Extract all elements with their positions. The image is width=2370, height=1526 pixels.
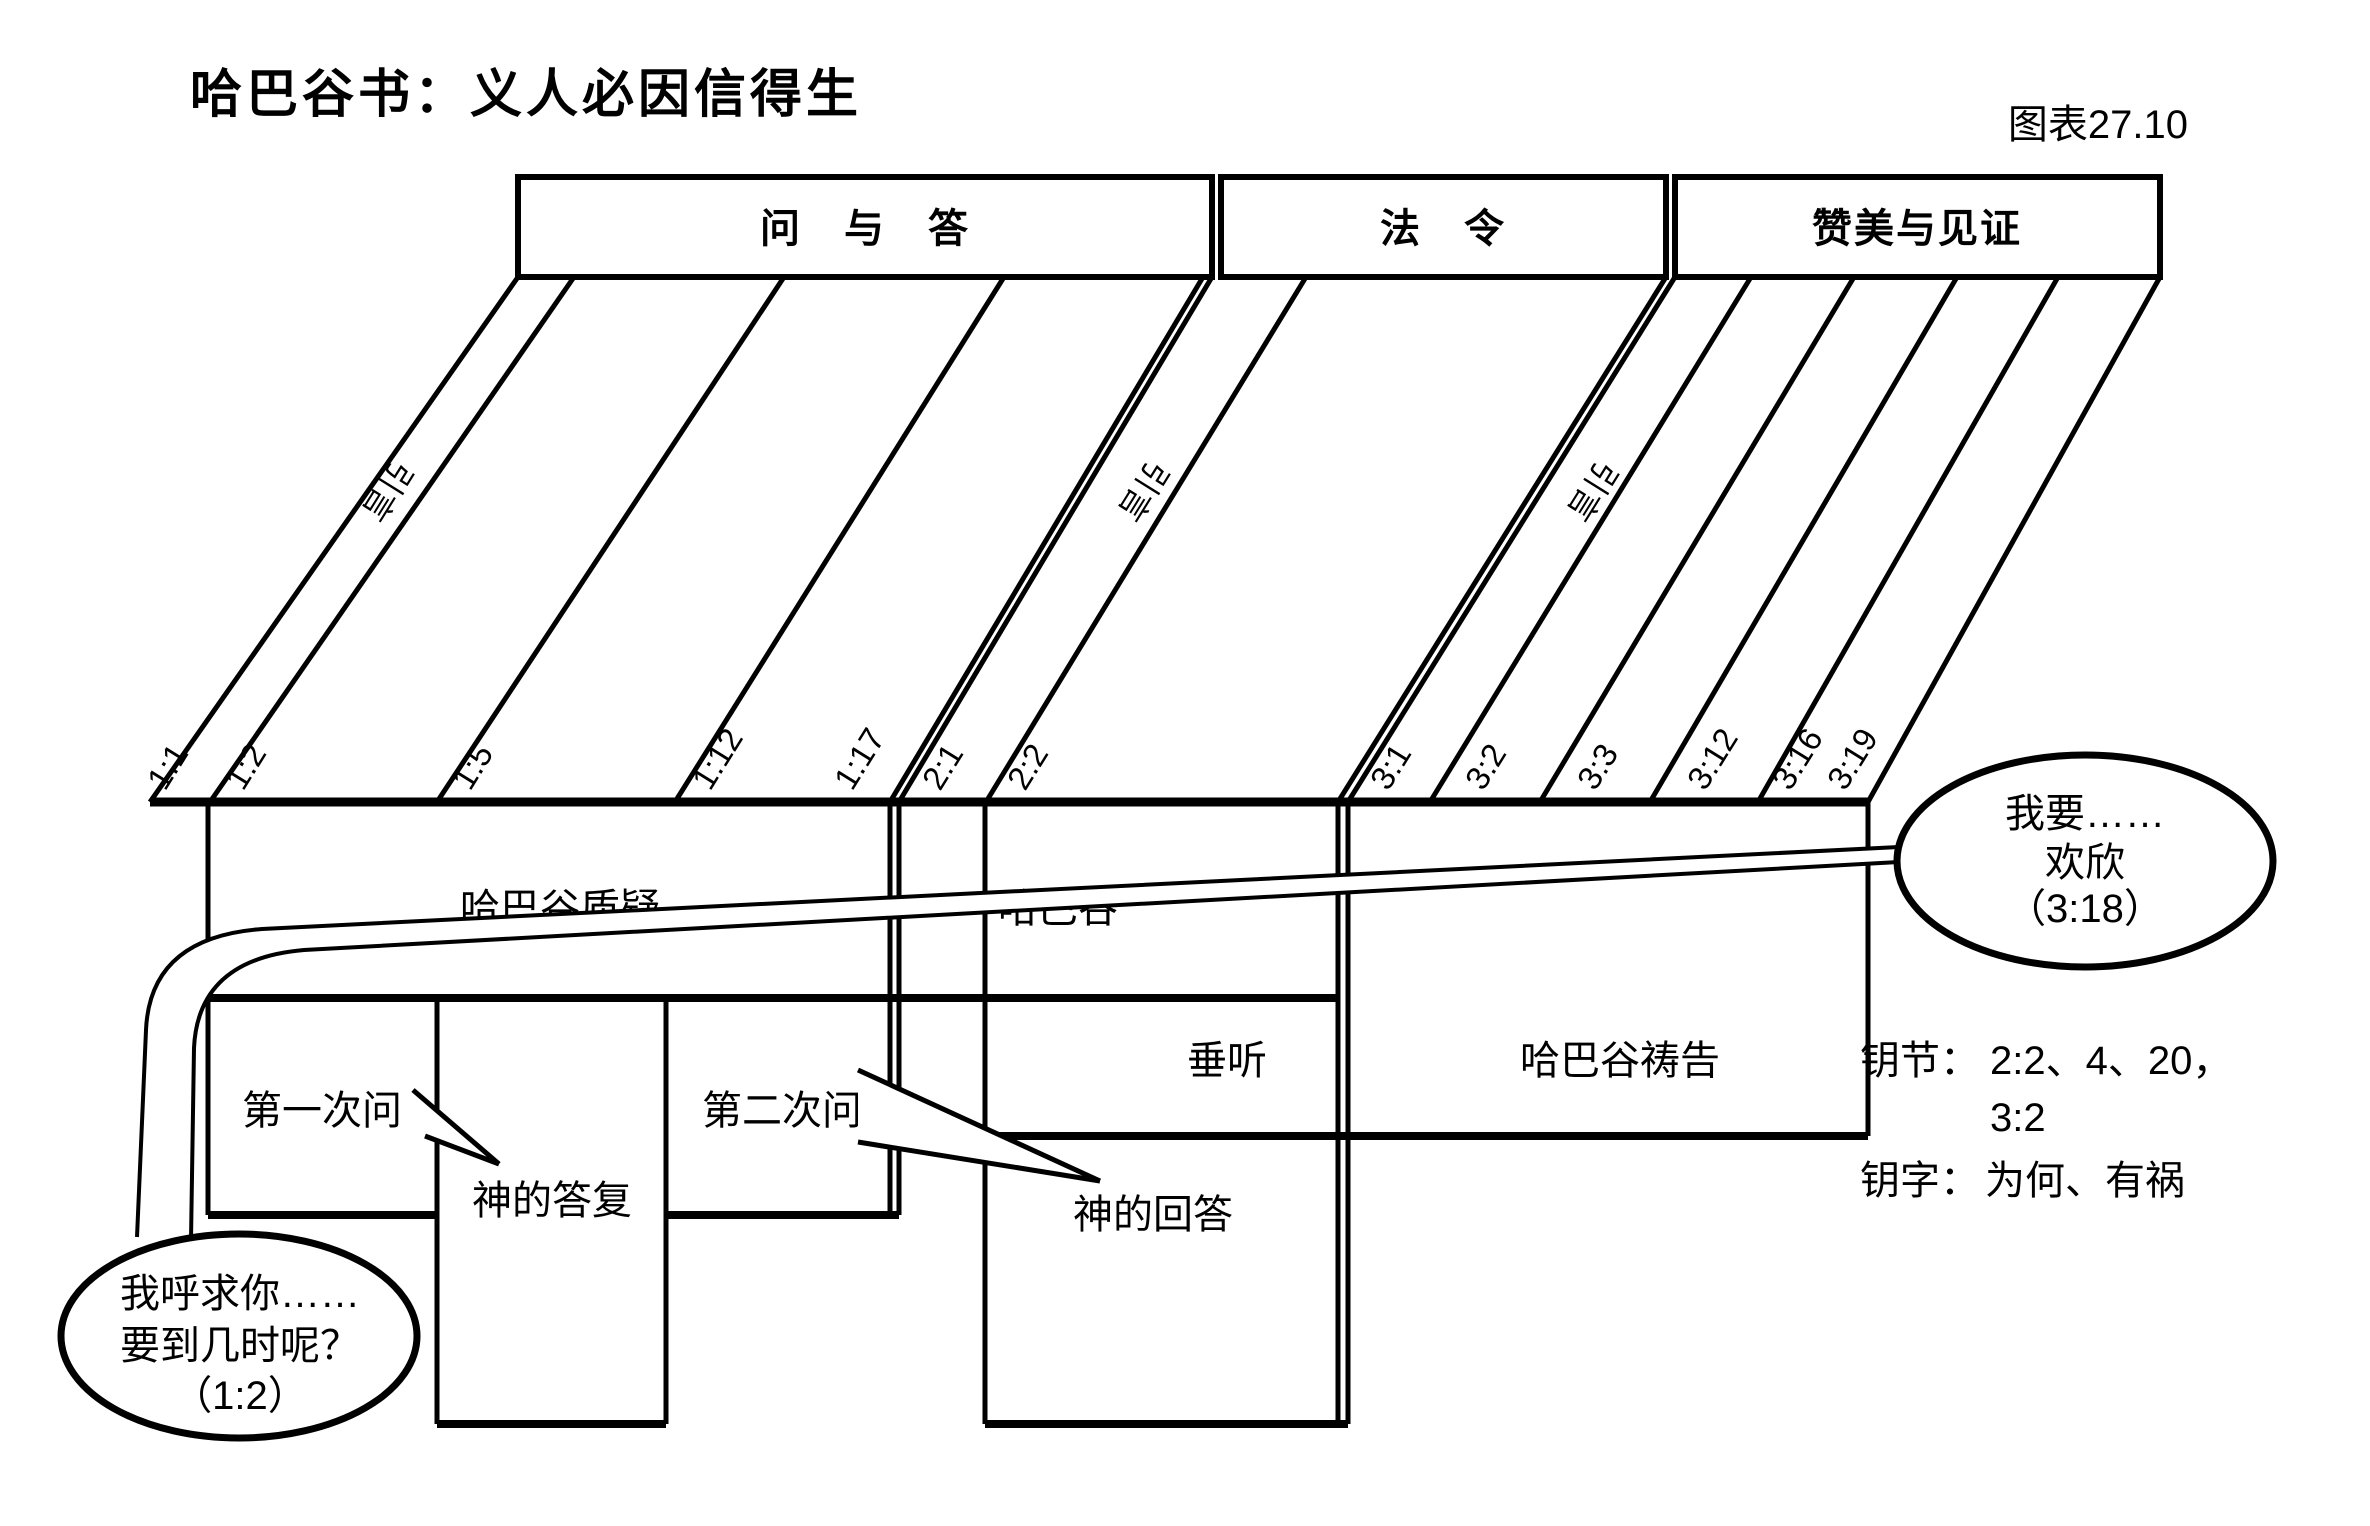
bubble-line: （1:2） [172, 1374, 308, 1418]
speech-bubble-cry-out: 我呼求你…… 要到几时呢？ （1:2） [61, 1234, 417, 1438]
verse-label: 1:17 [827, 722, 892, 796]
verse-label: 3:16 [1765, 722, 1830, 796]
bubble-line: 欢欣 [2045, 841, 2125, 885]
section-label-question-answer: 问 与 答 [760, 207, 970, 251]
section-label-decree: 法 令 [1380, 207, 1506, 251]
verse-label: 2:2 [1000, 737, 1056, 796]
pointer-wedge-first [413, 1090, 499, 1164]
key-notes: 钥节： 2:2、4、20， 3:2 钥字： 为何、有祸 [1860, 1039, 2232, 1203]
band-listens: 垂听 [1187, 1039, 1267, 1083]
speech-bubble-rejoice: 我要…… 欢欣 （3:18） [1897, 755, 2273, 967]
key-words-label: 钥字： [1860, 1159, 1980, 1203]
bubble-line: 我呼求你…… [120, 1272, 360, 1316]
key-words-value: 为何、有祸 [1985, 1159, 2185, 1203]
verse-label: 1:12 [685, 722, 750, 796]
label-second-question: 第二次问 [702, 1089, 862, 1133]
verse-label: 1:2 [218, 737, 274, 796]
page-title: 哈巴谷书：义人必因信得生 [190, 66, 862, 124]
bubble-line: 要到几时呢？ [120, 1324, 360, 1368]
verse-label: 3:3 [1570, 737, 1626, 796]
bubble-line: 我要…… [2005, 792, 2165, 836]
key-verses-line2: 3:2 [1990, 1096, 2046, 1140]
verse-label: 1:5 [445, 737, 501, 796]
intro-label: 引言 [1560, 454, 1624, 527]
verse-labels: 1:1 1:2 1:5 1:12 1:17 2:1 2:2 3:1 3:2 3:… [140, 722, 1885, 796]
intro-labels: 引言 引言 引言 [355, 454, 1624, 527]
habakkuk-book-chart: 哈巴谷书：义人必因信得生 图表27.10 问 与 答 法 令 赞美与见证 1:1… [0, 0, 2370, 1526]
slanted-verse-bands [150, 277, 2160, 802]
chart-number: 图表27.10 [2008, 103, 2188, 147]
diagram-canvas: 哈巴谷书：义人必因信得生 图表27.10 问 与 答 法 令 赞美与见证 1:1… [0, 0, 2370, 1526]
label-first-question: 第一次问 [242, 1089, 402, 1133]
key-verses-label: 钥节： [1860, 1039, 1980, 1083]
key-verses-line1: 2:2、4、20， [1990, 1039, 2232, 1083]
label-gods-answer: 神的回答 [1073, 1193, 1233, 1237]
band-habakkuk-prays: 哈巴谷祷告 [1520, 1039, 1720, 1083]
bubble-line: （3:18） [2006, 887, 2164, 931]
intro-label: 引言 [1111, 454, 1175, 527]
section-label-praise-testimony: 赞美与见证 [1812, 207, 2022, 251]
pointer-wedge-second [858, 1070, 1100, 1181]
label-gods-reply: 神的答复 [472, 1179, 632, 1223]
